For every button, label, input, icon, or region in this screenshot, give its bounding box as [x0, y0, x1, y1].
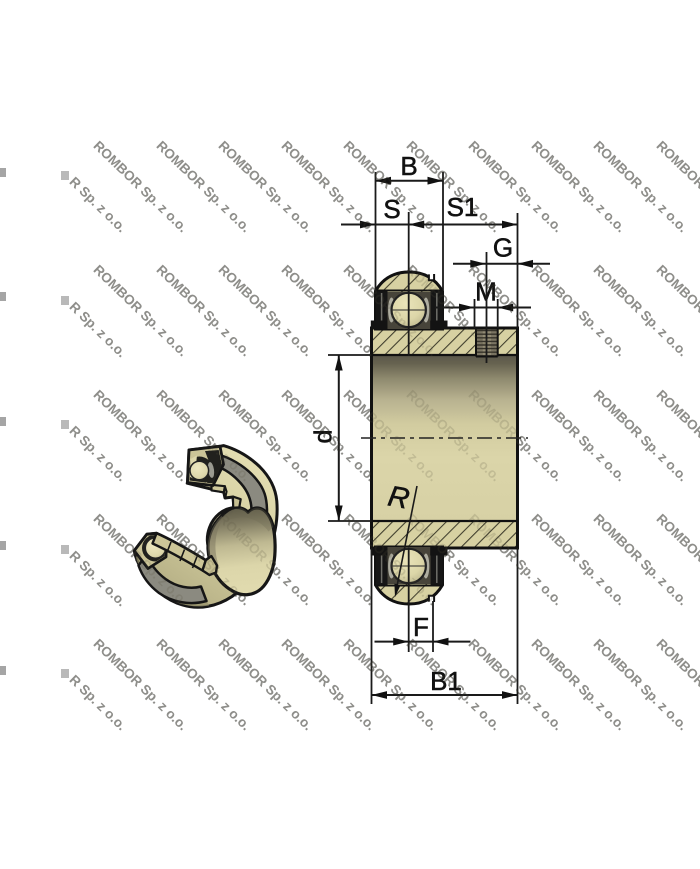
svg-text:G: G — [493, 233, 513, 263]
